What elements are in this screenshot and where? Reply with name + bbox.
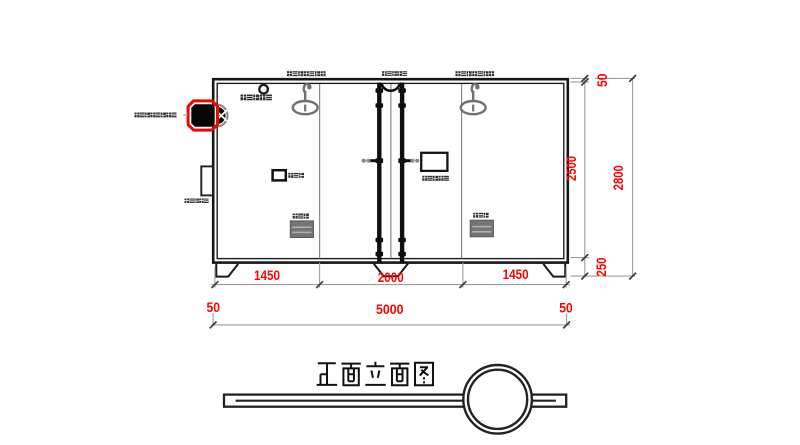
svg-text:50: 50 [594,73,610,87]
svg-text:2500: 2500 [563,156,579,181]
svg-text:5000: 5000 [376,301,404,317]
svg-text:2800: 2800 [610,165,626,190]
svg-text:50: 50 [207,299,221,315]
svg-text:50: 50 [559,299,573,315]
svg-text:250: 250 [593,257,609,276]
svg-text:1450: 1450 [254,267,280,283]
svg-text:2000: 2000 [378,269,404,285]
svg-text:1450: 1450 [503,266,529,282]
